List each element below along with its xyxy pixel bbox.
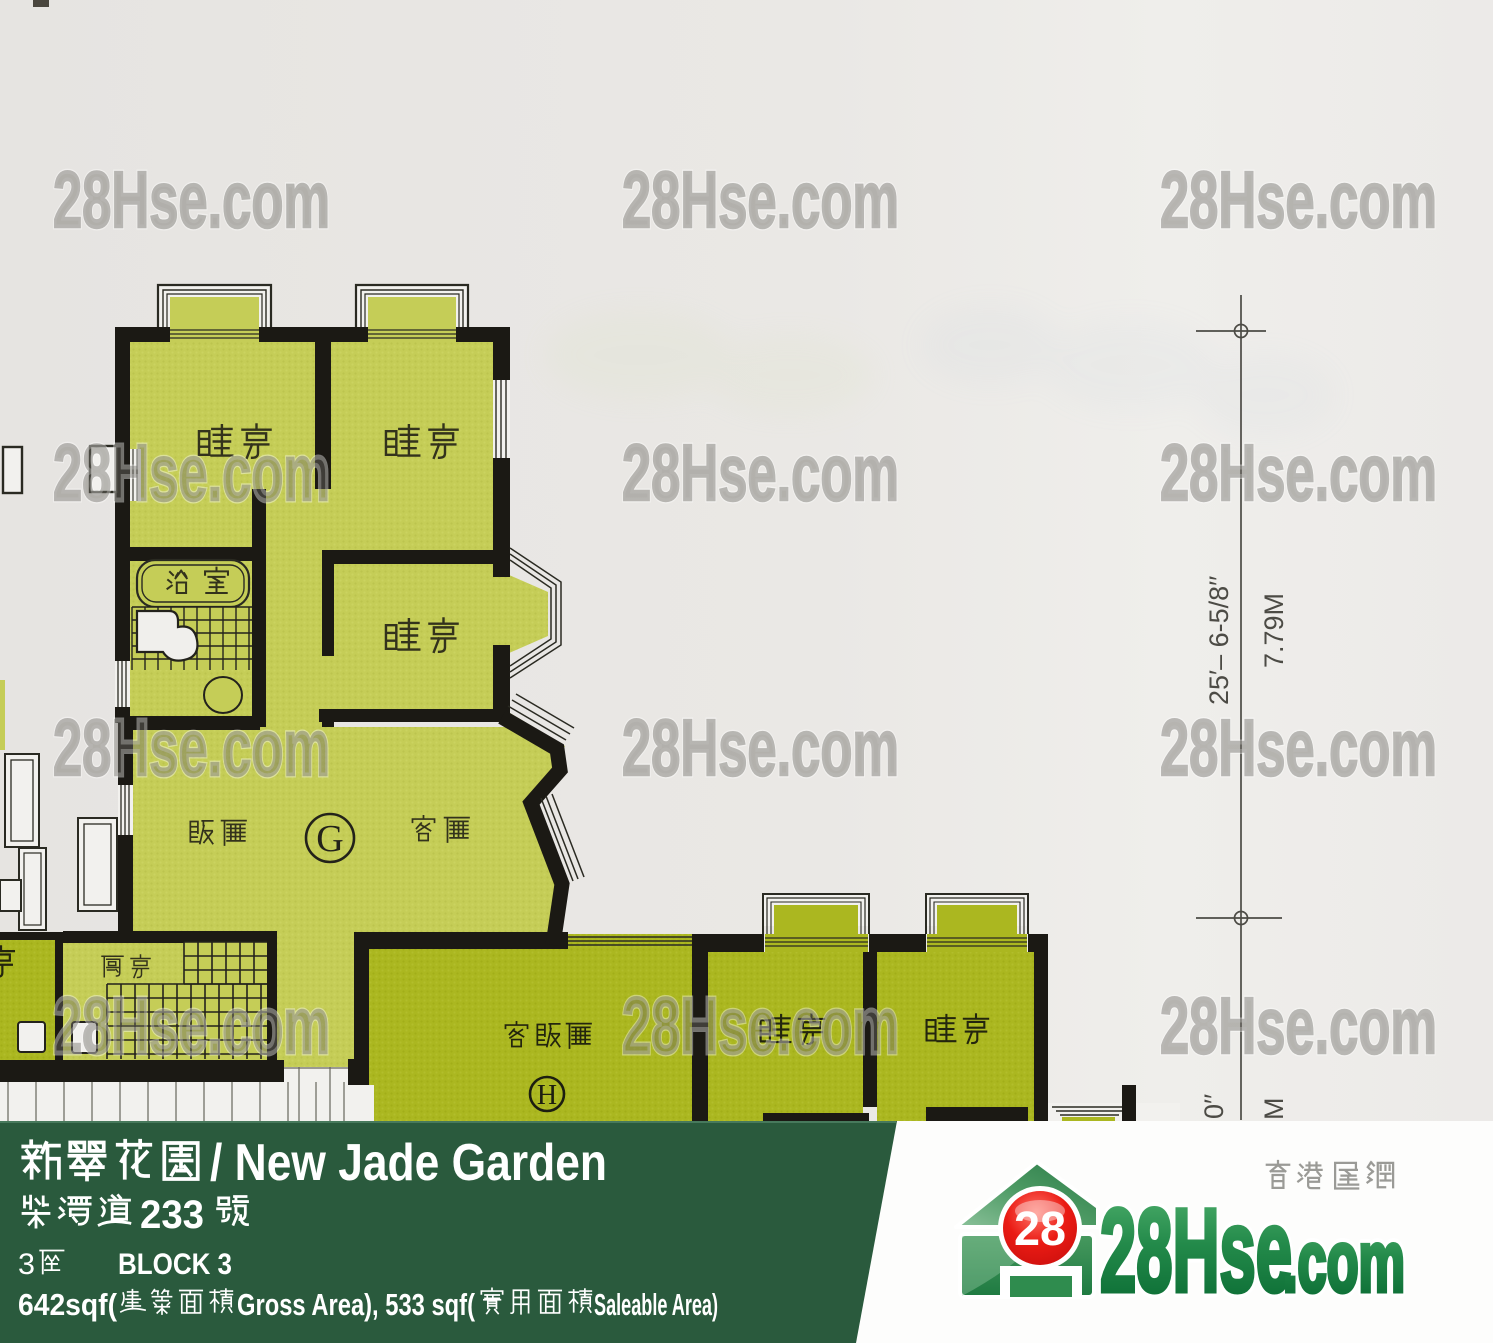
svg-text:3: 3: [18, 1248, 35, 1281]
svg-text:28Hse.com: 28Hse.com: [622, 981, 899, 1070]
svg-text:28Hse.com: 28Hse.com: [1160, 703, 1437, 792]
svg-text:28: 28: [1014, 1203, 1066, 1256]
svg-text:28Hse.com: 28Hse.com: [53, 428, 330, 517]
svg-text:28Hse.com: 28Hse.com: [622, 155, 899, 244]
svg-text:25′– 6-5/8′′: 25′– 6-5/8′′: [1204, 576, 1234, 705]
svg-text:28Hse.com: 28Hse.com: [622, 703, 899, 792]
svg-text:G: G: [316, 818, 343, 860]
svg-text:Gross Area), 533 sqf(: Gross Area), 533 sqf(: [237, 1287, 476, 1322]
svg-text:233: 233: [140, 1193, 204, 1237]
svg-text:28Hse.com: 28Hse.com: [1160, 981, 1437, 1070]
svg-text:BLOCK 3: BLOCK 3: [118, 1248, 232, 1281]
svg-text:28Hse.com: 28Hse.com: [53, 981, 330, 1070]
svg-text:28Hse.com: 28Hse.com: [622, 428, 899, 517]
svg-text:M: M: [1259, 1098, 1289, 1121]
svg-text:28Hse: 28Hse: [1100, 1185, 1292, 1317]
svg-text:Saleable Area): Saleable Area): [594, 1287, 718, 1322]
svg-text:28Hse.com: 28Hse.com: [53, 703, 330, 792]
svg-text:/ New Jade Garden: / New Jade Garden: [210, 1134, 607, 1192]
svg-text:.com: .com: [1283, 1214, 1405, 1310]
svg-text:642sqf(: 642sqf(: [18, 1287, 118, 1322]
svg-text:28Hse.com: 28Hse.com: [1160, 155, 1437, 244]
svg-text:H: H: [537, 1080, 557, 1111]
svg-text:28Hse.com: 28Hse.com: [53, 155, 330, 244]
svg-text:28Hse.com: 28Hse.com: [1160, 428, 1437, 517]
svg-text:0′′: 0′′: [1199, 1094, 1229, 1119]
svg-text:7.79M: 7.79M: [1259, 593, 1289, 668]
